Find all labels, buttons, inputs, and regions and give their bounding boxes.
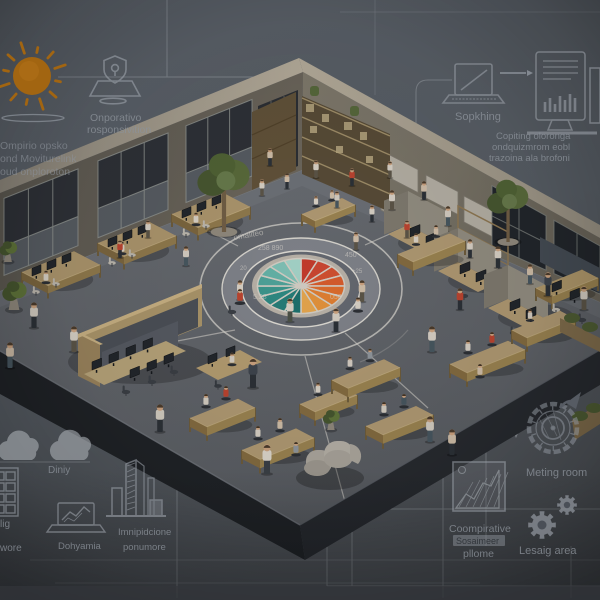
svg-text:Meting room: Meting room <box>526 467 587 479</box>
svg-text:trazoina ala brofoni: trazoina ala brofoni <box>489 153 570 164</box>
svg-text:pllome: pllome <box>463 548 494 560</box>
svg-text:Coompirative: Coompirative <box>449 523 511 535</box>
svg-text:Imnipidcione: Imnipidcione <box>118 527 171 538</box>
svg-text:Sosaimeer: Sosaimeer <box>456 536 499 546</box>
svg-text:ond Moviturelink: ond Moviturelink <box>0 153 77 165</box>
svg-text:ponumore: ponumore <box>123 542 166 553</box>
svg-text:Sopkhing: Sopkhing <box>455 111 501 123</box>
svg-text:Lesaig area: Lesaig area <box>519 545 577 557</box>
svg-text:wore: wore <box>0 543 22 554</box>
svg-text:Dohyamia: Dohyamia <box>58 541 101 552</box>
svg-text:Ompirio opsko: Ompirio opsko <box>0 140 68 152</box>
svg-text:ondquizmrom eobl: ondquizmrom eobl <box>492 142 570 153</box>
svg-text:rosponsivition: rosponsivition <box>87 124 151 136</box>
svg-text:Copiting oloronga: Copiting oloronga <box>496 131 571 142</box>
svg-text:lig: lig <box>0 519 10 530</box>
svg-text:oud onploroton: oud onploroton <box>0 166 70 178</box>
svg-text:Diniy: Diniy <box>48 465 70 476</box>
svg-text:Onporativo: Onporativo <box>90 112 142 124</box>
